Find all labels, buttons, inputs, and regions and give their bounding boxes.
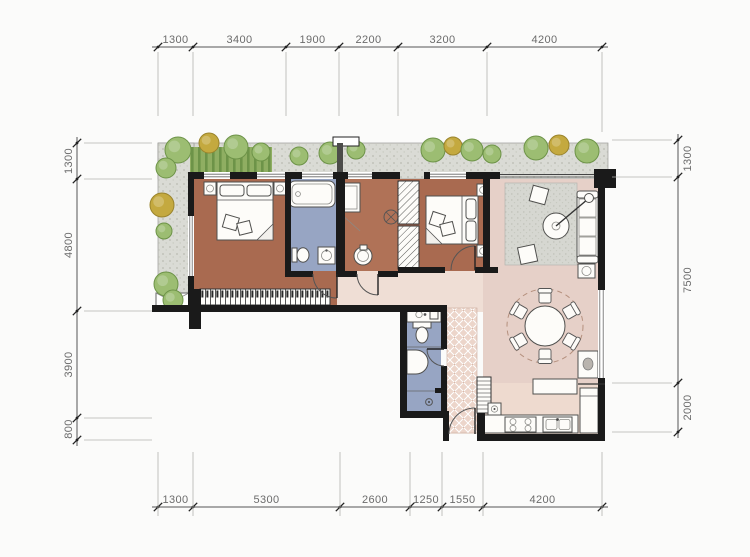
dim-label: 7500 bbox=[682, 267, 694, 293]
dim-label: 1300 bbox=[162, 34, 188, 46]
tree-icon bbox=[252, 143, 270, 161]
tree-icon bbox=[461, 139, 483, 161]
bathtub-icon bbox=[289, 181, 335, 207]
ottoman-icon bbox=[518, 244, 538, 264]
tree-icon bbox=[549, 135, 569, 155]
dining-table-icon bbox=[525, 306, 565, 346]
window-icon bbox=[348, 172, 372, 179]
wardrobe-icon bbox=[398, 181, 419, 224]
wardrobe-icon bbox=[398, 226, 419, 269]
dim-label: 3900 bbox=[63, 351, 75, 377]
living-room-floor-strip bbox=[483, 273, 493, 383]
ottoman-icon bbox=[529, 185, 549, 205]
cushion-icon bbox=[440, 221, 456, 236]
window-icon bbox=[257, 172, 285, 179]
washbasin-icon bbox=[407, 350, 428, 374]
dim-label: 1300 bbox=[63, 148, 75, 174]
washbasin-icon bbox=[318, 247, 335, 264]
window-icon bbox=[188, 216, 194, 276]
party-wall-stub bbox=[337, 143, 343, 173]
tree-icon bbox=[224, 135, 248, 159]
dining-chair-icon bbox=[538, 289, 552, 304]
fridge-icon bbox=[580, 388, 598, 433]
dining-chair-icon bbox=[538, 349, 552, 364]
tree-icon bbox=[156, 223, 172, 239]
window-icon bbox=[598, 290, 605, 378]
stove-icon bbox=[505, 417, 536, 432]
tree-icon bbox=[156, 158, 176, 178]
tree-icon bbox=[199, 133, 219, 153]
tree-icon bbox=[150, 193, 174, 217]
cushion-icon bbox=[237, 220, 253, 235]
dim-label: 4200 bbox=[531, 34, 557, 46]
toilet-icon bbox=[292, 248, 309, 262]
bar-counter-icon bbox=[533, 379, 577, 394]
window-icon bbox=[430, 172, 466, 179]
tree-icon bbox=[575, 139, 599, 163]
tree-icon bbox=[483, 145, 501, 163]
dim-label: 1300 bbox=[682, 145, 694, 171]
dim-label: 1250 bbox=[413, 494, 439, 506]
floor-drain-icon bbox=[488, 403, 501, 415]
tree-icon bbox=[524, 136, 548, 160]
dim-label: 3400 bbox=[226, 34, 252, 46]
dim-label: 3200 bbox=[429, 34, 455, 46]
wardrobe-icon bbox=[200, 289, 330, 305]
nightstand-icon bbox=[274, 182, 286, 195]
dim-label: 4800 bbox=[63, 232, 75, 258]
tree-icon bbox=[444, 137, 462, 155]
tree-icon bbox=[421, 138, 445, 162]
nightstand-icon bbox=[204, 182, 216, 195]
dim-label: 2000 bbox=[682, 394, 694, 420]
entry-mat-icon bbox=[447, 308, 477, 433]
floor-plan-page: 1300 3400 1900 2200 3200 4200 1300 5300 … bbox=[0, 0, 750, 557]
dim-label: 800 bbox=[63, 419, 75, 439]
window-icon bbox=[204, 172, 230, 179]
tree-icon bbox=[290, 147, 308, 165]
kitchen-sink-icon bbox=[543, 417, 572, 432]
dim-label: 2200 bbox=[355, 34, 381, 46]
dim-label: 5300 bbox=[253, 494, 279, 506]
dim-label: 4200 bbox=[529, 494, 555, 506]
dim-label: 1900 bbox=[299, 34, 325, 46]
dim-label: 1300 bbox=[162, 494, 188, 506]
window-icon bbox=[333, 137, 359, 146]
side-table-icon bbox=[578, 264, 595, 278]
dim-label: 2600 bbox=[362, 494, 388, 506]
window-icon bbox=[302, 172, 333, 179]
dim-label: 1550 bbox=[449, 494, 475, 506]
corner-cabinet-icon bbox=[578, 351, 598, 378]
floor-plan-drawing: 1300 3400 1900 2200 3200 4200 1300 5300 … bbox=[0, 0, 750, 557]
